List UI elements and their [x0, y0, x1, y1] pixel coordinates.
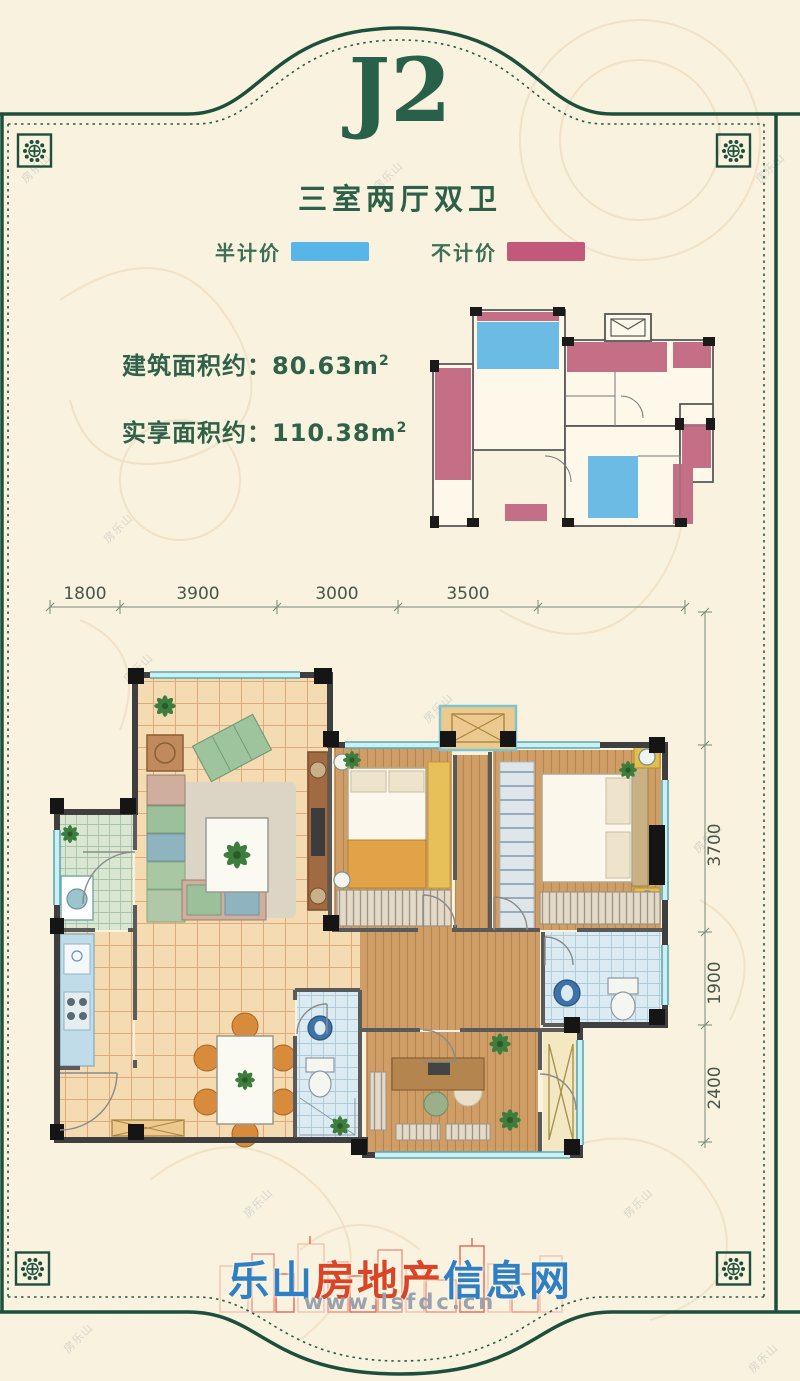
usable-area-value: 110.38 — [272, 419, 371, 447]
half-priced-area — [588, 456, 638, 518]
bedroom1-furniture — [500, 746, 660, 928]
not-priced-area — [567, 342, 667, 372]
not-priced-area — [673, 464, 693, 524]
corner-ornament-bottom-right — [715, 1251, 752, 1287]
corner-ornament-top-right — [715, 133, 752, 169]
main-floor-plan: 1800 3900 3000 3500 3700 1900 2400 — [40, 580, 730, 1180]
dim-top-1: 1800 — [63, 584, 106, 604]
built-area-value: 80.63 — [272, 352, 353, 380]
legend-label: 不计价 — [431, 237, 497, 266]
bedroom2-furniture — [334, 751, 451, 926]
not-priced-area — [435, 368, 471, 480]
site-url: www.lsfdc.cn — [0, 1290, 800, 1314]
built-area-label: 建筑面积约： — [122, 352, 272, 380]
flyer-content: J2 三室两厅双卫 半计价 不计价 建筑面积约：80.63m2 实享面积约：11… — [0, 0, 800, 1381]
dim-right-1: 3700 — [705, 823, 725, 866]
usable-area-sup: 2 — [397, 420, 408, 436]
kitchen-counter — [60, 934, 94, 1066]
built-area-line: 建筑面积约：80.63m2 — [122, 346, 390, 381]
usable-area-line: 实享面积约：110.38m2 — [122, 413, 407, 448]
usable-area-label: 实享面积约： — [122, 419, 272, 447]
legend-item-not-priced: 不计价 — [431, 237, 585, 266]
legend-item-half-priced: 半计价 — [215, 237, 369, 266]
usable-area-unit: m — [371, 419, 397, 447]
hallway-floor — [360, 930, 540, 1030]
corner-ornament-top-left — [16, 133, 53, 169]
half-priced-area — [477, 322, 559, 369]
pricing-schematic-plan — [425, 296, 717, 531]
dim-right-2: 1900 — [705, 961, 725, 1004]
mailbox-shaft-icon — [605, 314, 651, 341]
corner-ornament-bottom-left — [14, 1251, 51, 1287]
bathroom1-floor — [543, 932, 661, 1024]
not-priced-area — [505, 504, 547, 521]
not-priced-area — [682, 424, 711, 468]
not-priced-area — [477, 312, 559, 321]
legend-label: 半计价 — [215, 237, 281, 266]
built-area-sup: 2 — [379, 353, 390, 369]
dim-top-2: 3900 — [176, 584, 219, 604]
built-area-unit: m — [353, 352, 379, 380]
page-subtitle: 三室两厅双卫 — [0, 176, 800, 218]
shoe-cabinet — [112, 1120, 184, 1136]
hallway-floor — [455, 755, 490, 935]
legend-swatch-blue — [291, 242, 369, 261]
dim-right-3: 2400 — [705, 1066, 725, 1109]
dim-top-4: 3500 — [446, 584, 489, 604]
price-legend: 半计价 不计价 — [0, 237, 800, 266]
legend-swatch-pink — [507, 242, 585, 261]
page-title: J2 — [0, 42, 800, 139]
dim-top-3: 3000 — [315, 584, 358, 604]
